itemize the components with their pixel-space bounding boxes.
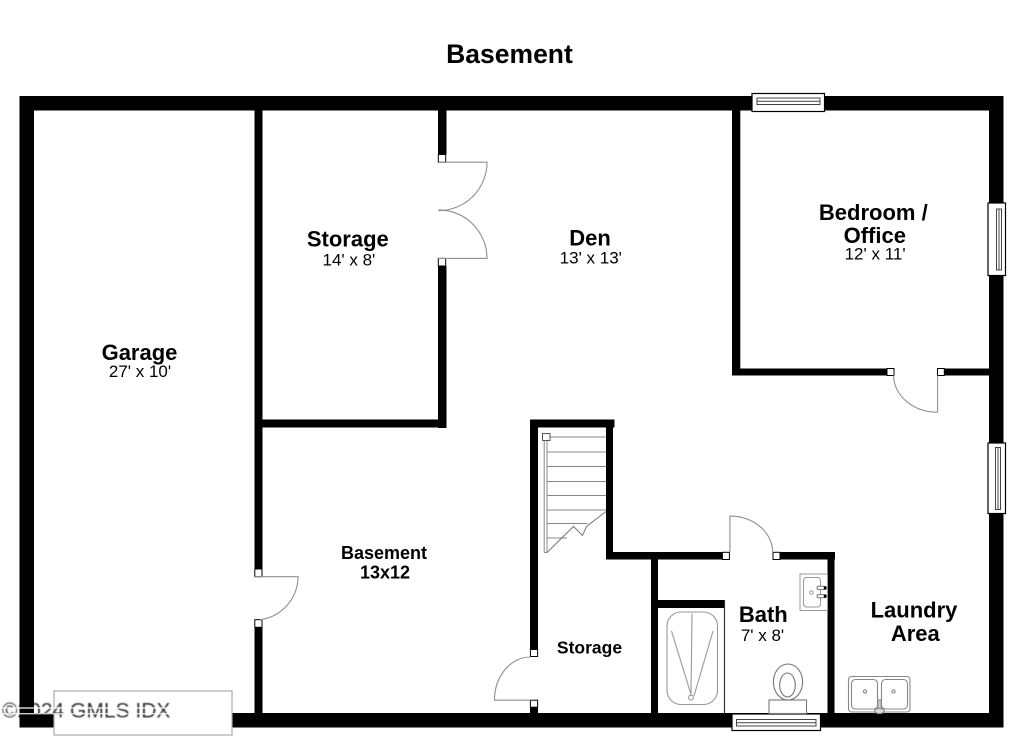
svg-text:Basement: Basement	[446, 39, 573, 69]
svg-text:12' x 11': 12' x 11'	[845, 244, 906, 263]
svg-text:Bath: Bath	[739, 602, 788, 627]
svg-text:Storage: Storage	[307, 227, 389, 252]
svg-text:©2024 GMLS IDX: ©2024 GMLS IDX	[2, 700, 170, 723]
svg-text:Bedroom /: Bedroom /	[819, 200, 928, 225]
svg-text:14' x 8': 14' x 8'	[322, 251, 375, 270]
svg-text:Area: Area	[891, 621, 941, 646]
svg-text:13x12: 13x12	[360, 562, 410, 582]
svg-text:Den: Den	[569, 225, 611, 250]
svg-text:7' x 8': 7' x 8'	[741, 626, 784, 645]
svg-text:Laundry: Laundry	[871, 598, 959, 623]
svg-text:27' x 10': 27' x 10'	[109, 362, 171, 381]
svg-text:13' x 13': 13' x 13'	[560, 249, 622, 268]
svg-text:Basement: Basement	[341, 543, 427, 563]
svg-text:Storage: Storage	[557, 637, 622, 657]
